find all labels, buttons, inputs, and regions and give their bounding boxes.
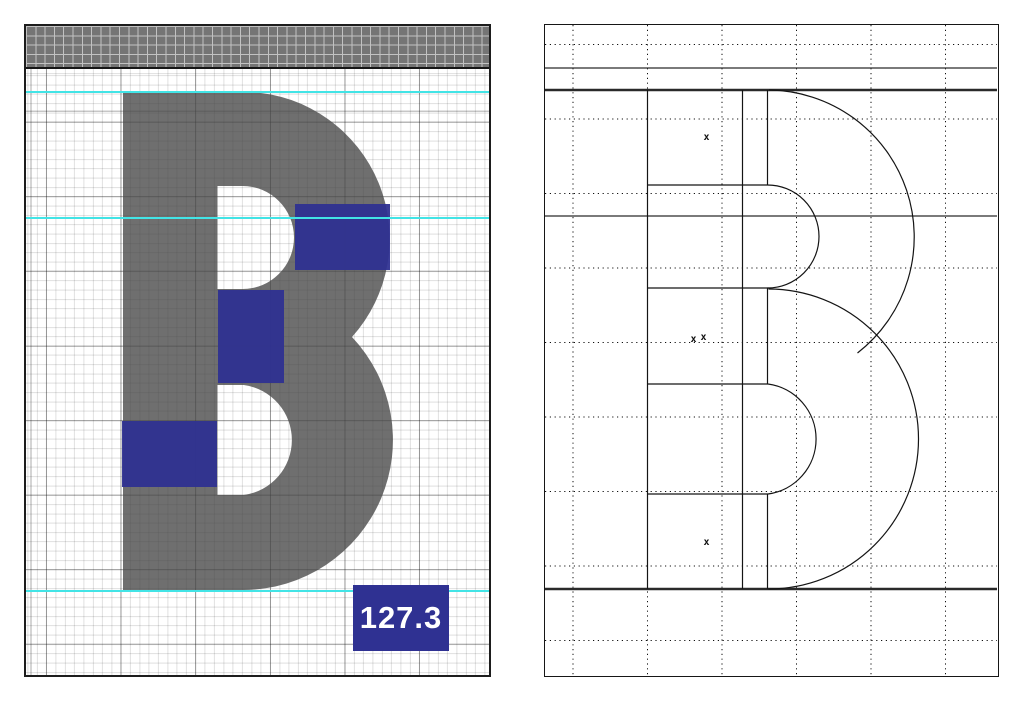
measurement-badge[interactable]: 127.3 [353,585,449,651]
bottom-counter-arc [768,384,816,494]
dotted-grid [545,25,997,675]
anchor-x-mark[interactable]: x [703,537,709,548]
app-canvas: { "app": { "title": "Glyph editor dual v… [0,0,1024,707]
panel-header-grid-bar [26,26,489,69]
anchor-x-mark[interactable]: x [703,132,709,143]
bottom-bowl-outer-arc [769,289,919,589]
measurement-overlay[interactable] [122,421,217,487]
glyph-fill-panel[interactable]: 127.3 [24,24,491,677]
anchor-x-mark[interactable]: x [700,332,706,343]
measurement-overlay[interactable] [295,204,390,270]
glyph-outline-svg: xxxx [545,25,997,675]
metric-lines [545,68,997,589]
anchor-x-marks: xxxx [690,132,709,548]
glyph-outline-panel[interactable]: xxxx [544,24,999,677]
measurement-overlay[interactable] [218,290,284,383]
top-bowl-outer-arc [769,90,914,353]
top-counter-arc [768,185,820,288]
anchor-x-mark[interactable]: x [690,334,696,345]
glyph-construction-lines [648,90,919,589]
